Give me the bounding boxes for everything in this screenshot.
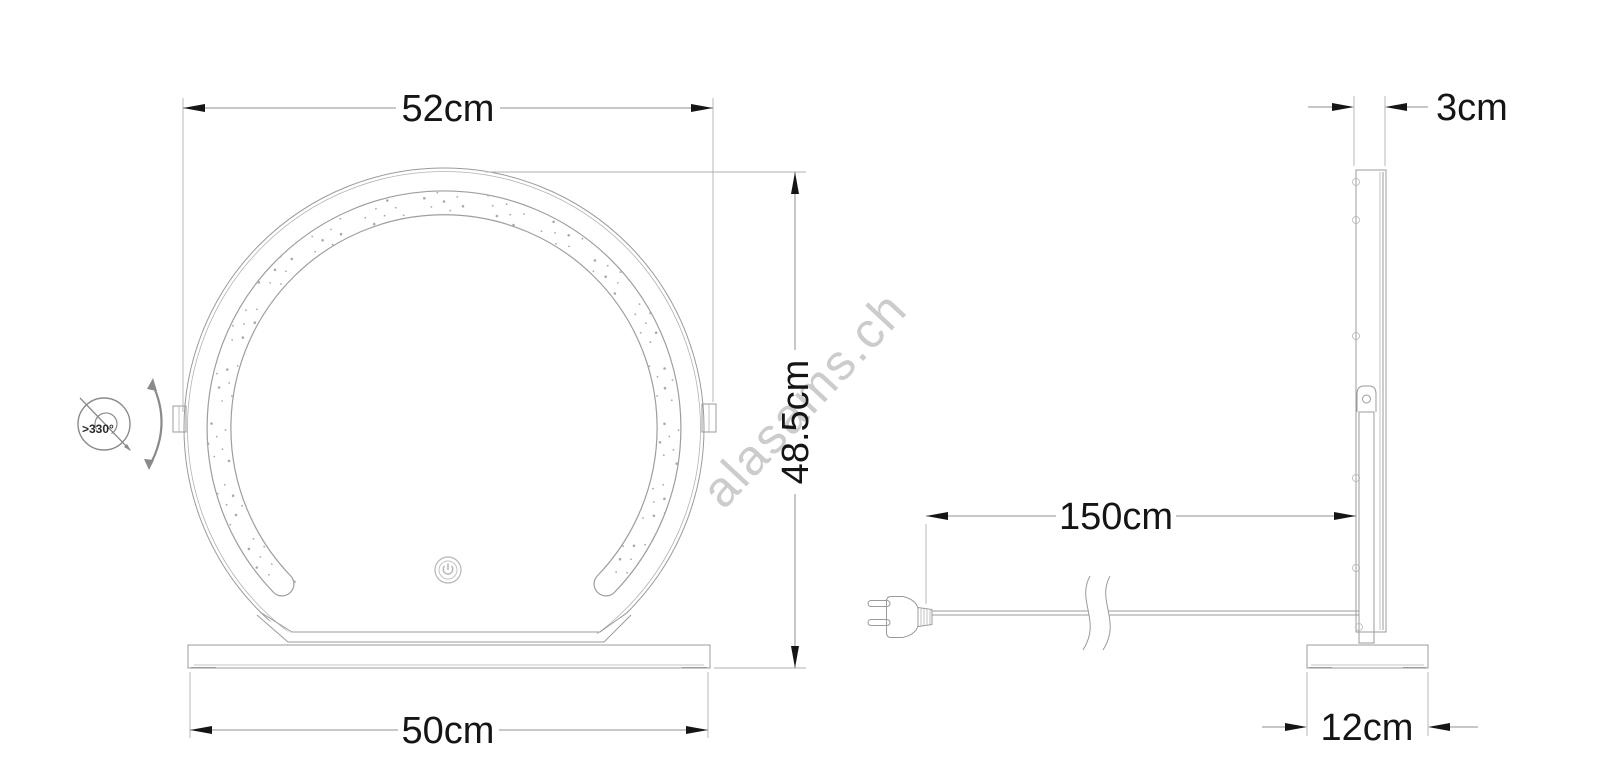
base-depth-label: 12cm — [1321, 707, 1414, 749]
side-base — [1307, 645, 1428, 668]
dim-cable-length: 150cm — [926, 496, 1356, 604]
dimension-drawing: >330° alasams.ch 52cm 48.5cm — [0, 0, 1600, 784]
pivot-screw-icon — [1363, 395, 1371, 403]
led-band — [219, 203, 669, 584]
stand-arm — [1356, 386, 1377, 643]
base-width-label: 50cm — [402, 710, 495, 752]
power-plug-icon — [868, 597, 932, 638]
thickness-label: 3cm — [1436, 87, 1508, 129]
touch-power-button-icon — [435, 557, 461, 583]
power-cable — [931, 576, 1359, 650]
front-view: >330° alasams.ch 52cm 48.5cm — [78, 88, 918, 752]
height-label: 48.5cm — [775, 360, 817, 485]
dim-base-depth: 12cm — [1262, 672, 1478, 749]
frame-bottom-cut — [200, 611, 690, 700]
width-label: 52cm — [402, 88, 495, 130]
dim-thickness: 3cm — [1308, 87, 1508, 166]
led-sparkle-dots — [207, 192, 680, 583]
cable-length-label: 150cm — [1059, 496, 1173, 538]
rotation-angle-icon: >330° — [78, 398, 131, 451]
drawing-svg: >330° alasams.ch 52cm 48.5cm — [0, 0, 1600, 784]
mirror-frame — [184, 168, 704, 688]
side-view: 3cm 150cm 12cm — [868, 87, 1508, 749]
rotation-arrow-icon — [144, 378, 162, 470]
rotation-label: >330° — [82, 422, 114, 436]
